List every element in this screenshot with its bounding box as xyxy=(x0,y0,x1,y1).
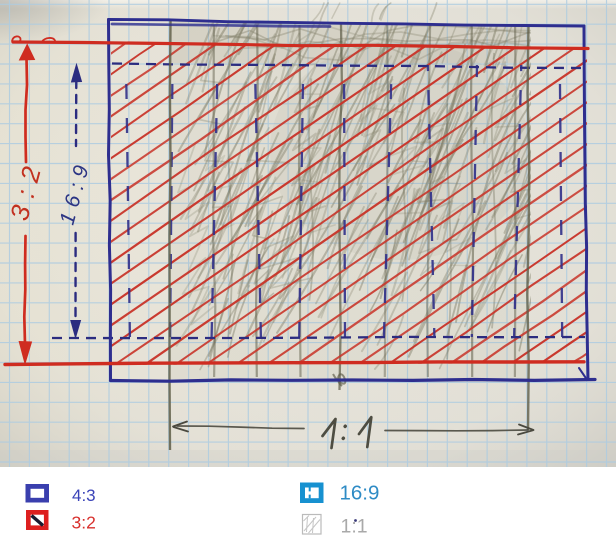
svg-text:4:3: 4:3 xyxy=(72,486,96,505)
svg-text:1:1: 1:1 xyxy=(341,516,368,538)
svg-text:3:2: 3:2 xyxy=(72,513,96,533)
svg-text:16:9: 16:9 xyxy=(340,482,380,505)
